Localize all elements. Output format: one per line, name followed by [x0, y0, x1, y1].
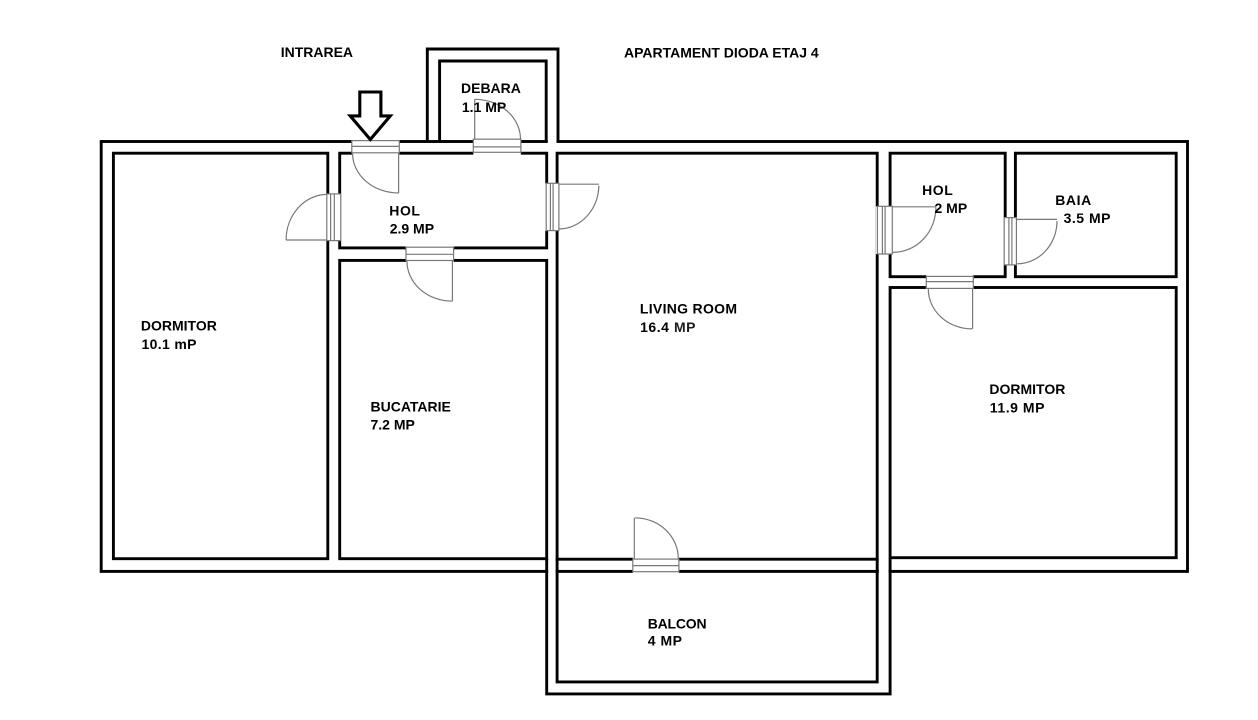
svg-text:1.1 MP: 1.1 MP: [462, 99, 506, 115]
svg-text:APARTAMENT DIODA ETAJ 4: APARTAMENT DIODA ETAJ 4: [624, 45, 819, 61]
svg-text:BUCATARIE: BUCATARIE: [371, 398, 451, 414]
svg-text:4 MP: 4 MP: [648, 632, 683, 648]
svg-text:BALCON: BALCON: [648, 615, 707, 631]
svg-text:DORMITOR: DORMITOR: [989, 381, 1065, 397]
svg-text:10.1 mP: 10.1 mP: [142, 336, 197, 352]
svg-text:HOL: HOL: [922, 182, 953, 198]
svg-text:16.4 MP: 16.4 MP: [640, 319, 696, 335]
svg-text:3.5 MP: 3.5 MP: [1064, 210, 1111, 226]
svg-text:2.9 MP: 2.9 MP: [390, 221, 434, 237]
svg-text:DORMITOR: DORMITOR: [141, 318, 217, 334]
svg-text:BAIA: BAIA: [1055, 192, 1092, 208]
svg-text:11.9 MP: 11.9 MP: [990, 399, 1045, 415]
svg-text:HOL: HOL: [389, 203, 420, 219]
svg-text:LIVING ROOM: LIVING ROOM: [640, 301, 737, 317]
svg-text:7.2 MP: 7.2 MP: [371, 416, 415, 432]
svg-text:2 MP: 2 MP: [935, 200, 968, 216]
svg-text:INTRAREA: INTRAREA: [281, 44, 353, 60]
svg-text:DEBARA: DEBARA: [461, 80, 521, 96]
